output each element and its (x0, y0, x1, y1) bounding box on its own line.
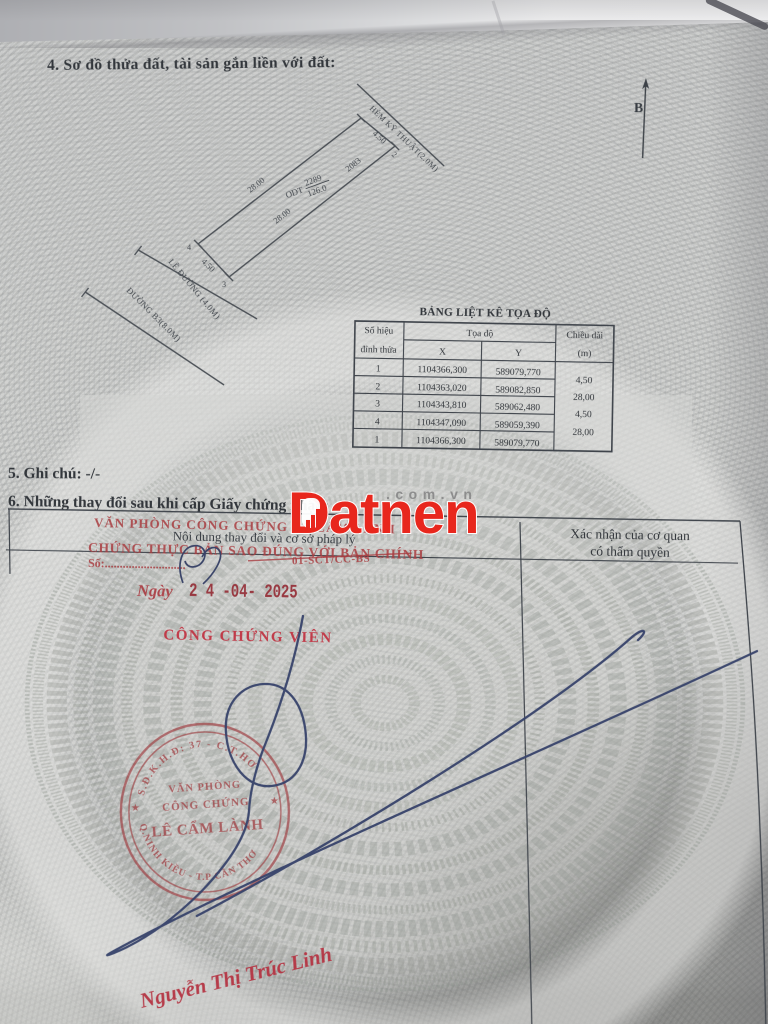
svg-text:Chiều dài: Chiều dài (566, 330, 603, 342)
svg-text:Ngày: Ngày (136, 581, 174, 601)
svg-text:3: 3 (375, 399, 380, 409)
svg-text:ĐƯỜNG B3(8.0M): ĐƯỜNG B3(8.0M) (125, 285, 183, 343)
svg-text:Nguyễn Thị Trúc Linh: Nguyễn Thị Trúc Linh (136, 942, 334, 1013)
svg-text:ODT: ODT (284, 184, 305, 200)
svg-text:2083: 2083 (343, 155, 363, 173)
svg-text:Tọa độ: Tọa độ (466, 329, 493, 339)
svg-text:589062,480: 589062,480 (495, 402, 541, 413)
svg-text:28.00: 28.00 (271, 206, 292, 226)
svg-text:4.50: 4.50 (200, 256, 218, 274)
svg-text:1: 1 (374, 435, 379, 445)
svg-text:2: 2 (375, 382, 380, 392)
svg-text:589059,390: 589059,390 (495, 420, 541, 431)
svg-text:589079,770: 589079,770 (494, 438, 540, 449)
svg-text:CÔNG CHỨNG VIÊN: CÔNG CHỨNG VIÊN (163, 626, 332, 646)
svg-text:4: 4 (187, 243, 191, 252)
svg-text:4. Sơ đồ thửa đất, tài sản gắn: 4. Sơ đồ thửa đất, tài sản gắn liền với … (47, 54, 336, 74)
svg-text:BẢNG LIỆT KÊ TỌA ĐỘ: BẢNG LIỆT KÊ TỌA ĐỘ (419, 305, 551, 320)
svg-text:có thẩm quyền: có thẩm quyền (590, 543, 670, 559)
svg-text:đỉnh thửa: đỉnh thửa (360, 345, 397, 356)
svg-text:5. Ghi chú: -/-: 5. Ghi chú: -/- (8, 465, 100, 483)
svg-text:4,50: 4,50 (576, 376, 593, 386)
svg-text:4: 4 (375, 417, 380, 427)
svg-text:28,00: 28,00 (572, 428, 594, 438)
svg-text:589082,850: 589082,850 (495, 385, 541, 396)
svg-text:Y: Y (515, 349, 522, 359)
svg-text:2 4 -04- 2025: 2 4 -04- 2025 (189, 581, 298, 604)
svg-text:1: 1 (376, 364, 381, 374)
svg-text:1104366,300: 1104366,300 (416, 436, 466, 447)
svg-text:28,00: 28,00 (573, 393, 595, 403)
svg-text:B: B (634, 100, 643, 115)
svg-text:3: 3 (222, 280, 226, 289)
svg-text:★: ★ (131, 803, 140, 814)
svg-text:589079,770: 589079,770 (496, 368, 542, 379)
svg-text:1104343,810: 1104343,810 (417, 400, 467, 411)
svg-text:2: 2 (390, 150, 399, 159)
svg-text:1104363,020: 1104363,020 (417, 383, 467, 394)
svg-text:X: X (439, 347, 446, 357)
svg-text:Số:...........................: Số:........................... (88, 556, 186, 572)
svg-text:4.50: 4.50 (371, 128, 389, 145)
svg-text:1104347,090: 1104347,090 (416, 418, 466, 429)
svg-text:1104366,300: 1104366,300 (417, 365, 467, 376)
svg-text:4,50: 4,50 (575, 410, 592, 420)
svg-text:28.00: 28.00 (245, 175, 266, 195)
svg-text:Số hiệu: Số hiệu (364, 325, 393, 337)
svg-text:(m): (m) (578, 348, 592, 359)
svg-text:★: ★ (270, 796, 279, 807)
svg-text:Xác nhận của cơ quan: Xác nhận của cơ quan (570, 526, 690, 543)
